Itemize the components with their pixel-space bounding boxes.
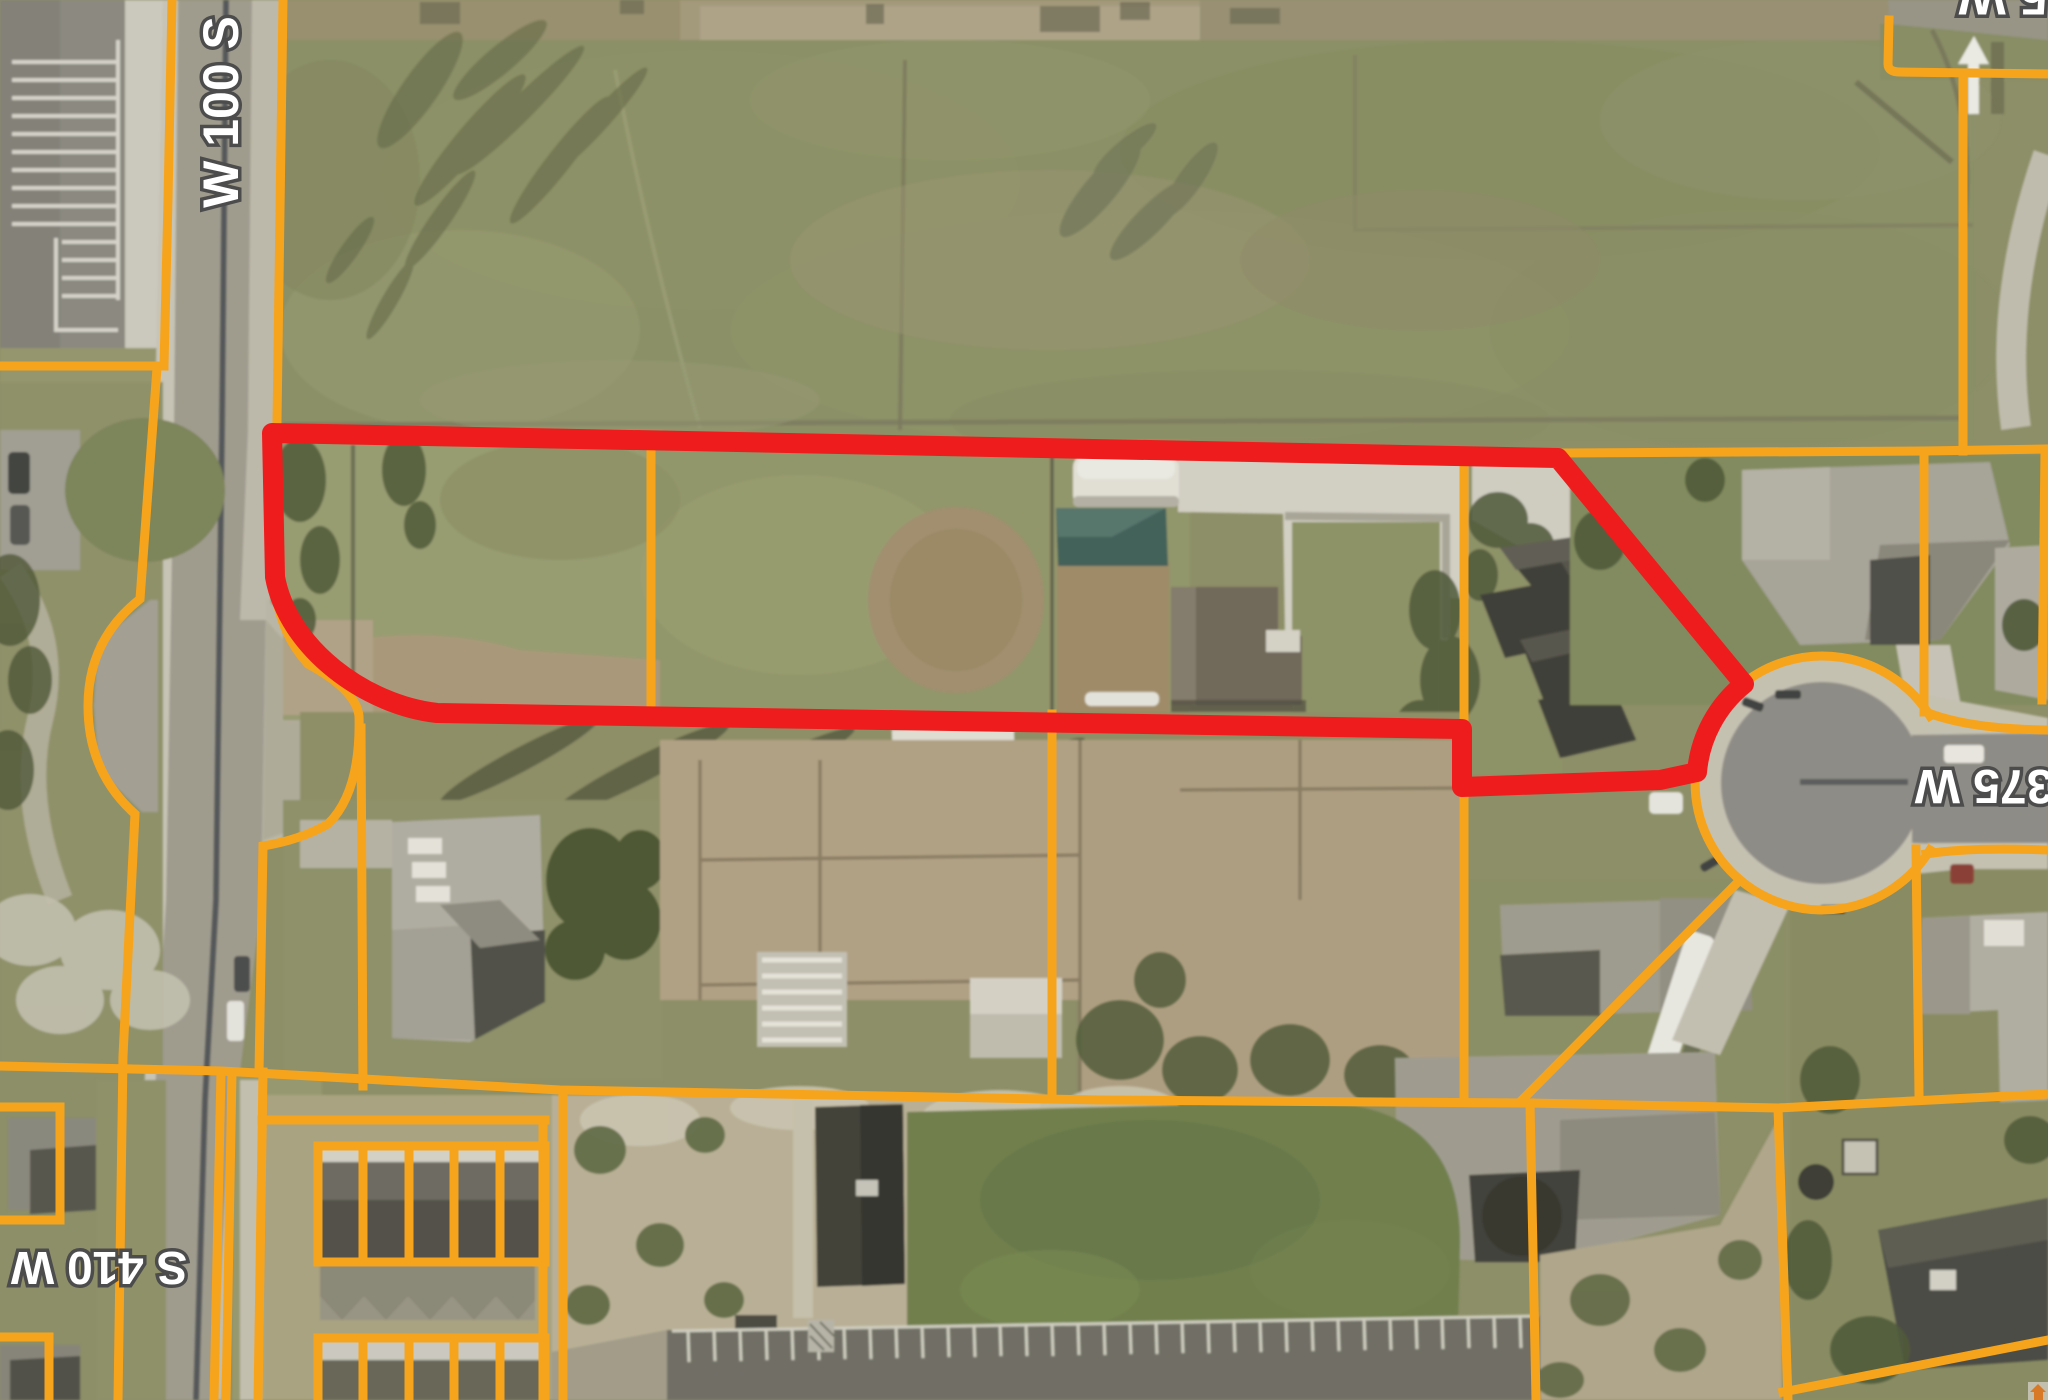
- svg-text:W 100 S: W 100 S: [193, 16, 249, 208]
- svg-text:375 W: 375 W: [1914, 759, 2048, 812]
- svg-text:S 410 W: S 410 W: [10, 1242, 187, 1294]
- svg-text:5 W: 5 W: [1958, 0, 2048, 25]
